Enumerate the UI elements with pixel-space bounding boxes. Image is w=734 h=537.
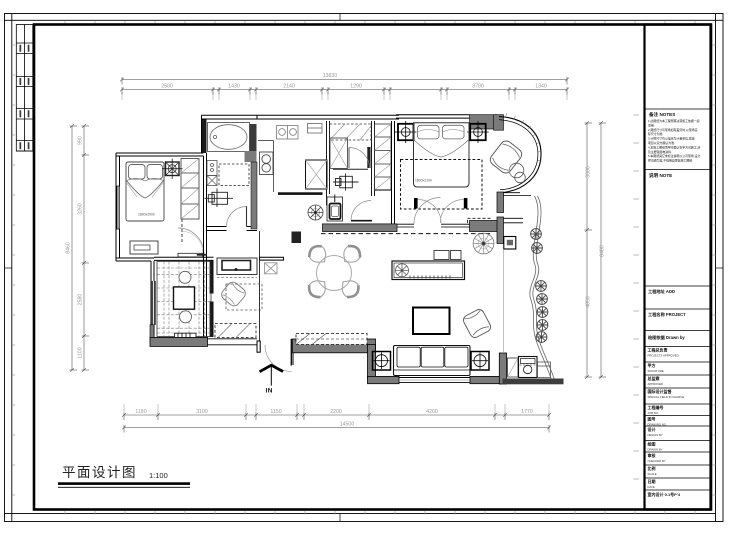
svg-text:工程名称 PROJECT: 工程名称 PROJECT	[648, 311, 686, 318]
svg-text:项目以双方确认为准.: 项目以双方确认为准.	[648, 140, 675, 145]
svg-text:3780: 3780	[472, 84, 484, 90]
svg-text:JOB NO.: JOB NO.	[648, 411, 659, 415]
svg-text:图号: 图号	[648, 416, 656, 422]
svg-text:及主要强弱电资料.: 及主要强弱电资料.	[648, 149, 672, 154]
svg-text:审核: 审核	[648, 452, 656, 458]
svg-text:工程编号: 工程编号	[648, 404, 664, 410]
svg-text:4.本施工图纸须甲方确认签字方可施工,涉: 4.本施工图纸须甲方确认签字方可施工,涉	[648, 144, 700, 149]
svg-text:平面设计图: 平面设计图	[62, 465, 137, 480]
svg-text:DATE: DATE	[648, 485, 655, 489]
svg-text:设计: 设计	[648, 426, 656, 432]
svg-text:绘图: 绘图	[648, 441, 656, 447]
svg-text:工程总负责: 工程总负责	[648, 347, 668, 353]
svg-text:1150: 1150	[270, 409, 281, 415]
svg-text:SIGNATURE: SIGNATURE	[648, 369, 664, 373]
svg-text:1800x2000: 1800x2000	[138, 213, 155, 217]
svg-text:2.图纸尺寸与现场如有差异时,以现场实: 2.图纸尺寸与现场如有差异时,以现场实	[648, 127, 698, 132]
svg-text:录用.: 录用.	[648, 122, 655, 127]
svg-text:SPECIAL FIELD IN CHARGE: SPECIAL FIELD IN CHARGE	[648, 395, 685, 399]
svg-text:总监察: 总监察	[648, 375, 661, 381]
svg-text:DESIGN BY: DESIGN BY	[648, 433, 663, 437]
svg-text:4260: 4260	[426, 409, 438, 415]
svg-text:备注 NOTES: 备注 NOTES	[648, 111, 675, 118]
svg-text:1290: 1290	[350, 84, 362, 90]
svg-text:1800x2100: 1800x2100	[415, 179, 432, 183]
svg-text:师沟通为准,不得擅自更改施工图纸.: 师沟通为准,不得擅自更改施工图纸.	[648, 158, 693, 163]
svg-text:CHECKED BY: CHECKED BY	[648, 459, 666, 463]
svg-text:甲方: 甲方	[648, 362, 656, 368]
svg-text:工程地址 ADD: 工程地址 ADD	[648, 288, 675, 295]
svg-text:比例: 比例	[648, 465, 656, 471]
svg-text:日期: 日期	[648, 478, 656, 484]
svg-text:国际设计监督: 国际设计监督	[648, 388, 672, 394]
svg-text:DRAWING NO.: DRAWING NO.	[648, 423, 667, 427]
svg-text:14500: 14500	[340, 422, 355, 428]
svg-text:IN: IN	[266, 388, 274, 395]
svg-text:3.计算尺寸均以毫米为计量单位,增减: 3.计算尺寸均以毫米为计量单位,增减	[648, 136, 695, 141]
svg-text:2140: 2140	[283, 84, 295, 90]
svg-text:DRAWN BY: DRAWN BY	[648, 448, 663, 452]
svg-text:PROJECTS APPROVED: PROJECTS APPROVED	[648, 354, 679, 358]
svg-text:5.本图纸其它未标注说明以公司现场,设计: 5.本图纸其它未标注说明以公司现场,设计	[648, 153, 700, 158]
svg-text:3100: 3100	[196, 409, 208, 415]
svg-text:1430: 1430	[228, 84, 240, 90]
svg-text:说明 NOTE: 说明 NOTE	[649, 172, 672, 179]
svg-text:1340: 1340	[535, 84, 547, 90]
svg-text:2580: 2580	[161, 84, 173, 90]
svg-text:1:100: 1:100	[149, 471, 168, 480]
svg-text:1770: 1770	[521, 409, 533, 415]
svg-text:2580: 2580	[78, 294, 84, 306]
svg-text:8480: 8480	[600, 245, 606, 257]
svg-text:3260: 3260	[78, 203, 84, 215]
svg-text:1180: 1180	[135, 409, 146, 415]
svg-text:绘图依据 Drawn by: 绘图依据 Drawn by	[648, 334, 685, 341]
svg-text:室内设计 0.1号P'4: 室内设计 0.1号P'4	[648, 491, 681, 497]
svg-text:APPROVED: APPROVED	[648, 382, 664, 386]
svg-text:1.此图纸为本工程预算决算施工依据一起: 1.此图纸为本工程预算决算施工依据一起	[648, 118, 700, 123]
svg-text:3300: 3300	[586, 166, 592, 178]
svg-text:1100: 1100	[78, 347, 84, 358]
svg-text:13830: 13830	[323, 73, 338, 79]
svg-text:2200: 2200	[330, 409, 342, 415]
svg-text:4850: 4850	[586, 296, 592, 308]
svg-text:8460: 8460	[66, 242, 72, 254]
svg-text:990: 990	[78, 136, 84, 145]
svg-text:SCALE: SCALE	[648, 472, 657, 476]
svg-text:际尺寸为准.: 际尺寸为准.	[648, 131, 663, 136]
